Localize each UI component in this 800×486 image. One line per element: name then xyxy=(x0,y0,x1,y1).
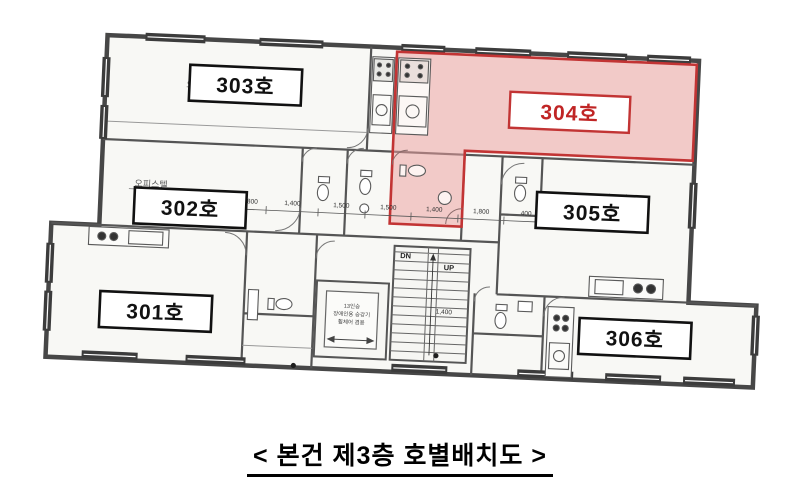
kitchen-unit-304 xyxy=(396,58,431,135)
building: DN UP 13인승 장애인용 승강기 휠체어 겸용 xyxy=(45,33,766,388)
dim-value: 1,500 xyxy=(333,202,350,210)
dim-core-value: 1,400 xyxy=(436,309,453,317)
unit-label-303: 303호 xyxy=(189,65,302,106)
svg-text:306호: 306호 xyxy=(605,327,664,353)
elevator-label-1: 13인승 xyxy=(344,303,361,311)
svg-text:304호: 304호 xyxy=(540,101,599,127)
svg-text:301호: 301호 xyxy=(126,300,185,326)
caption-text: < 본건 제3층 호별배치도 > xyxy=(247,436,553,477)
unit-label-306: 306호 xyxy=(578,318,691,359)
dim-value: 400 xyxy=(521,210,533,217)
toilet-icon xyxy=(514,177,527,201)
kitchen-unit-301 xyxy=(88,226,169,247)
stairs: DN UP xyxy=(390,246,471,363)
unit-label-302: 302호 xyxy=(133,187,246,228)
svg-text:305호: 305호 xyxy=(563,201,622,227)
dim-value: 1,500 xyxy=(380,204,397,212)
floorplan-page: DN UP 13인승 장애인용 승강기 휠체어 겸용 xyxy=(0,0,800,486)
svg-text:302호: 302호 xyxy=(160,197,219,223)
floorplan-svg: DN UP 13인승 장애인용 승강기 휠체어 겸용 xyxy=(0,0,800,432)
dim-value: 1,400 xyxy=(426,206,443,214)
kitchen-unit-305 xyxy=(589,276,664,299)
dim-value: 1,400 xyxy=(284,200,301,208)
stairs-up-label: UP xyxy=(444,263,455,272)
stairs-dn-label: DN xyxy=(400,251,411,260)
kitchen-unit-303 xyxy=(370,57,395,134)
unit-label-305: 305호 xyxy=(536,192,649,233)
unit-label-304: 304호 xyxy=(509,92,630,133)
unit-label-301: 301호 xyxy=(99,291,212,332)
dim-value: 800 xyxy=(247,198,259,205)
svg-text:303호: 303호 xyxy=(216,74,275,100)
toilet-icon xyxy=(317,176,330,200)
dim-value: 1,800 xyxy=(473,208,490,216)
kitchen-unit-306 xyxy=(545,307,574,378)
caption: < 본건 제3층 호별배치도 > xyxy=(0,436,800,477)
elevator: 13인승 장애인용 승강기 휠체어 겸용 xyxy=(314,280,389,359)
